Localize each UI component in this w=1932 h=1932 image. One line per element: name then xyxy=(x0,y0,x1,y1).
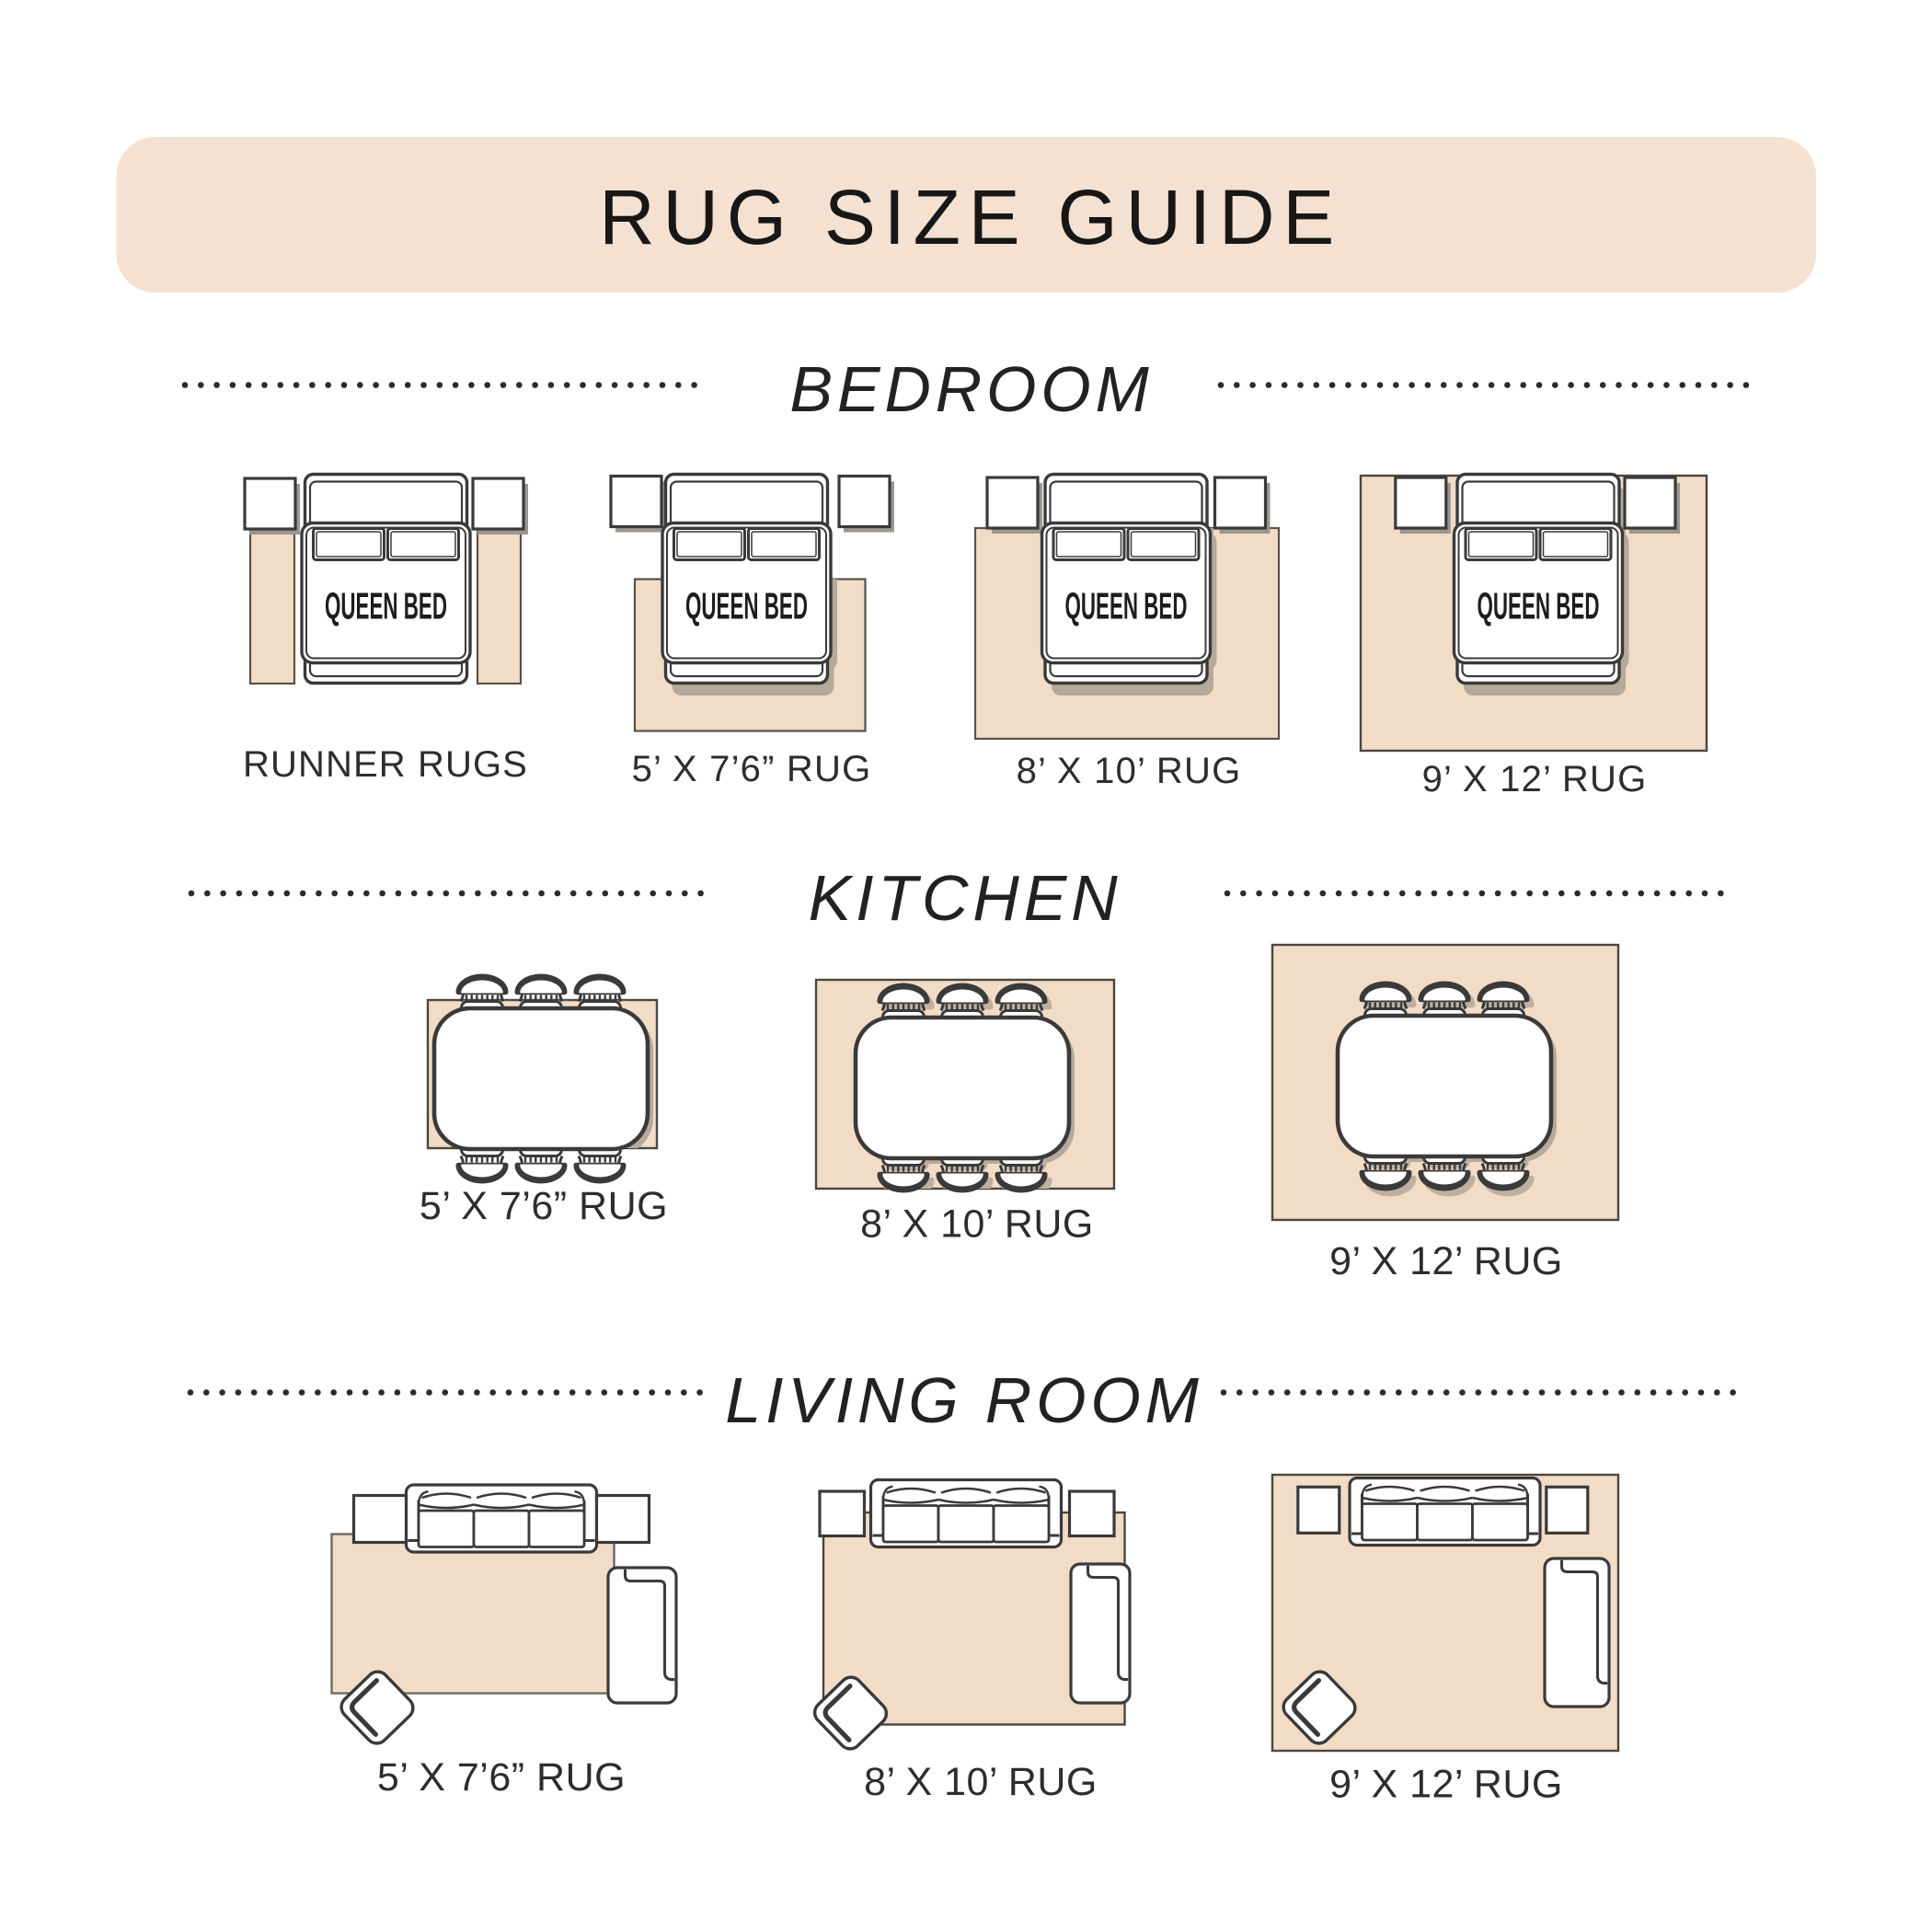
svg-text:8’ X 10’ RUG: 8’ X 10’ RUG xyxy=(860,1202,1094,1247)
svg-text:9’ X 12’ RUG: 9’ X 12’ RUG xyxy=(1422,759,1648,799)
svg-text:9’ X 12’ RUG: 9’ X 12’ RUG xyxy=(1329,1239,1563,1283)
svg-text:5’ X 7’6” RUG: 5’ X 7’6” RUG xyxy=(632,749,872,789)
svg-text:5’ X 7’6” RUG: 5’ X 7’6” RUG xyxy=(420,1184,668,1228)
svg-text:9’ X 12’ RUG: 9’ X 12’ RUG xyxy=(1329,1763,1563,1807)
svg-text:RUNNER RUGS: RUNNER RUGS xyxy=(243,744,528,785)
svg-text:KITCHEN: KITCHEN xyxy=(809,862,1122,934)
svg-text:LIVING ROOM: LIVING ROOM xyxy=(725,1364,1203,1436)
svg-text:BEDROOM: BEDROOM xyxy=(789,353,1153,425)
svg-text:RUG SIZE GUIDE: RUG SIZE GUIDE xyxy=(599,174,1342,260)
svg-text:8’ X 10’ RUG: 8’ X 10’ RUG xyxy=(864,1760,1098,1804)
svg-text:5’ X 7’6” RUG: 5’ X 7’6” RUG xyxy=(377,1755,626,1800)
svg-text:8’ X 10’ RUG: 8’ X 10’ RUG xyxy=(1017,751,1242,791)
